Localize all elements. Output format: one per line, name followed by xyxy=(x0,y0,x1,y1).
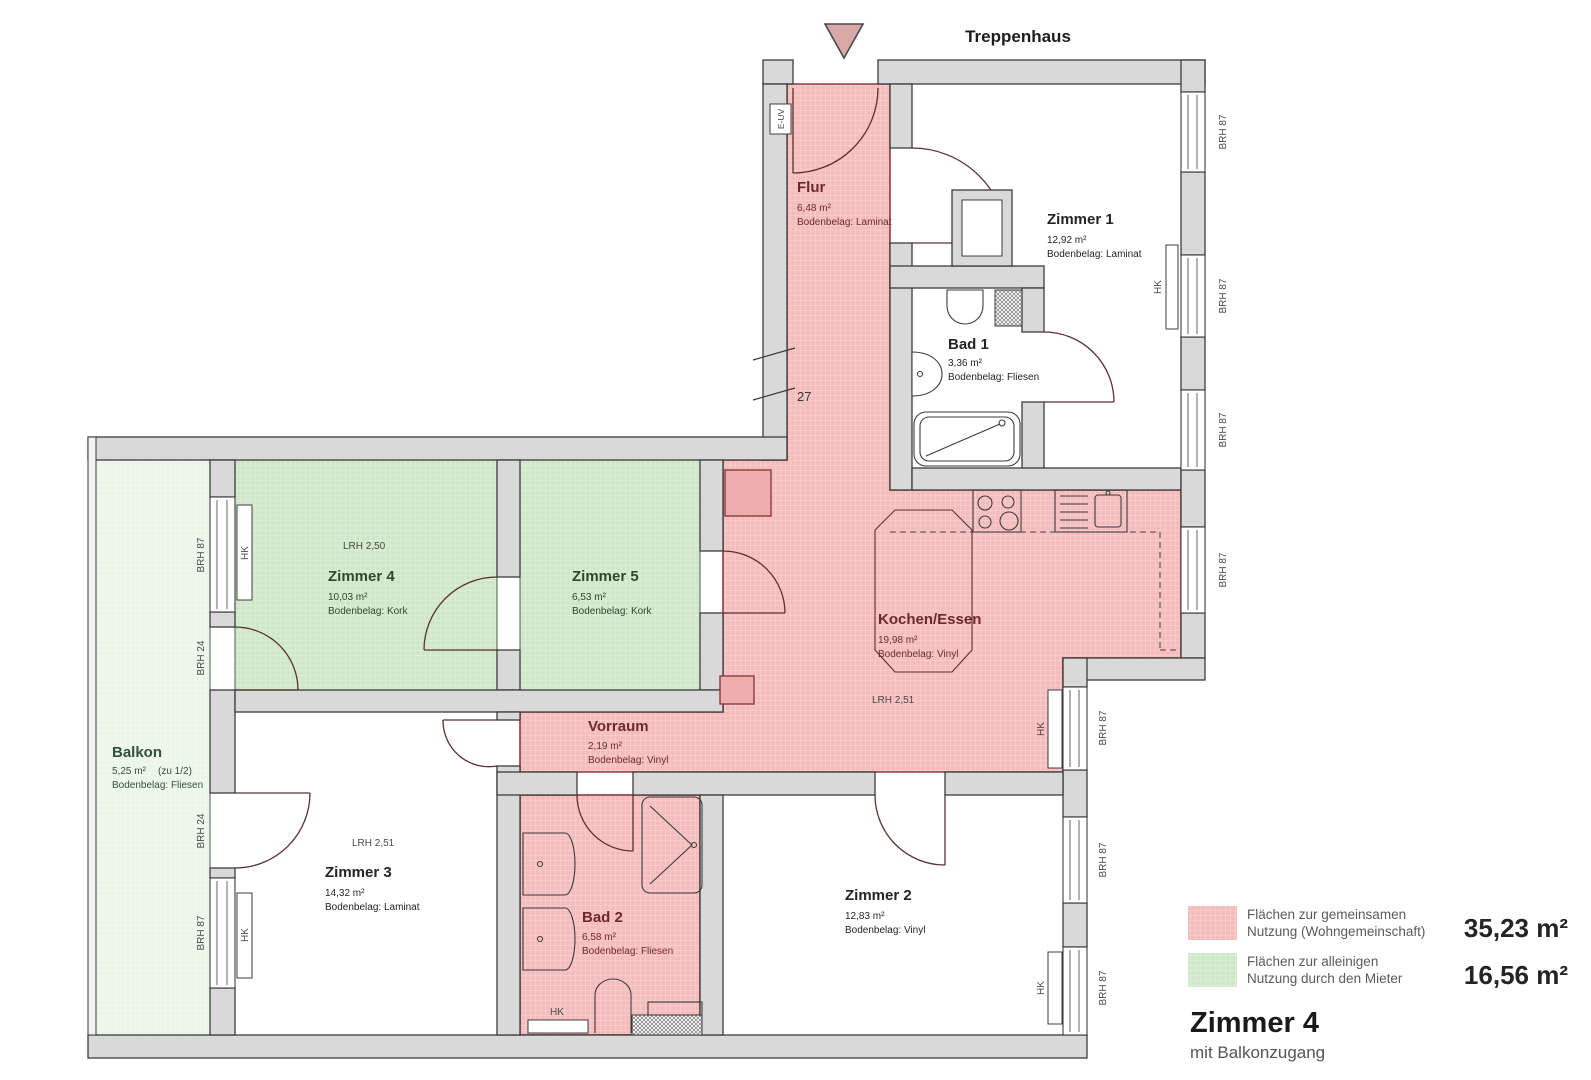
room-floor-zimmer1: Bodenbelag: Laminat xyxy=(1047,249,1142,260)
dimension-label: 27 xyxy=(797,389,811,404)
room-lrh-kochen: LRH 2,51 xyxy=(872,695,915,706)
room-floor-zimmer4: Bodenbelag: Kork xyxy=(328,606,409,617)
euv-label: E-UV xyxy=(776,109,786,130)
room-lrh-zimmer3: LRH 2,51 xyxy=(352,838,395,849)
room-floor-zimmer3: Bodenbelag: Laminat xyxy=(325,902,420,913)
bathtub-icon xyxy=(914,412,1020,466)
brh-label: BRH 87 xyxy=(1218,552,1229,587)
legend-common-line1: Flächen zur gemeinsamen xyxy=(1247,907,1406,922)
hk-label: HK xyxy=(240,928,251,942)
room-area-bad1: 3,36 m² xyxy=(948,358,983,369)
room-area-flur: 6,48 m² xyxy=(797,203,832,214)
hk-label: HK xyxy=(1036,722,1047,736)
room-label-vorraum: Vorraum xyxy=(588,718,649,735)
room-label-zimmer4: Zimmer 4 xyxy=(328,568,395,585)
room-area-zimmer1: 12,92 m² xyxy=(1047,235,1087,246)
room-label-flur: Flur xyxy=(797,179,825,196)
room-area-kochen: 19,98 m² xyxy=(878,635,918,646)
room-area-vorraum: 2,19 m² xyxy=(588,741,623,752)
shaft-hatch-icon xyxy=(632,1015,702,1035)
room-area-bad2: 6,58 m² xyxy=(582,932,617,943)
room-label-bad2: Bad 2 xyxy=(582,909,623,926)
shaft-hatch-icon xyxy=(995,290,1022,326)
brh-label: BRH 87 xyxy=(196,915,207,950)
sink-icon xyxy=(912,352,942,396)
brh-label: BRH 87 xyxy=(1218,412,1229,447)
radiator xyxy=(528,1020,588,1033)
floor-plan-page: E-UV 27 Treppenhaus Flur 6,48 m² Bodenbe… xyxy=(0,0,1591,1080)
shaft-vorraum xyxy=(720,676,754,704)
room-floor-zimmer2: Bodenbelag: Vinyl xyxy=(845,925,925,936)
legend-exclusive-line1: Flächen zur alleinigen xyxy=(1247,954,1378,969)
room-floor-vorraum: Bodenbelag: Vinyl xyxy=(588,755,668,766)
plan-subtitle: mit Balkonzugang xyxy=(1190,1043,1325,1062)
title-block: Zimmer 4 mit Balkonzugang xyxy=(1190,1007,1325,1062)
brh-label: BRH 24 xyxy=(196,640,207,675)
brh-label: BRH 87 xyxy=(1218,114,1229,149)
legend-common-line2: Nutzung (Wohngemeinschaft) xyxy=(1247,924,1425,939)
hk-label: HK xyxy=(550,1007,564,1018)
hk-label: HK xyxy=(1036,981,1047,995)
room-label-zimmer1: Zimmer 1 xyxy=(1047,211,1114,228)
plan-title: Zimmer 4 xyxy=(1190,1007,1319,1039)
hk-label: HK xyxy=(240,546,251,560)
room-label-balkon: Balkon xyxy=(112,744,162,761)
room-area-zimmer2: 12,83 m² xyxy=(845,911,885,922)
legend-exclusive-line2: Nutzung durch den Mieter xyxy=(1247,971,1403,986)
room-floor-bad2: Bodenbelag: Fliesen xyxy=(582,946,673,957)
entrance-arrow-icon xyxy=(825,24,863,58)
room-area-balkon: 5,25 m² xyxy=(112,766,147,777)
room-label-kochen: Kochen/Essen xyxy=(878,611,981,628)
room-area-zimmer4: 10,03 m² xyxy=(328,592,368,603)
room-floor-balkon: Bodenbelag: Fliesen xyxy=(112,780,203,791)
room-lrh-zimmer4: LRH 2,50 xyxy=(343,541,386,552)
room-label-bad1: Bad 1 xyxy=(948,336,989,353)
room-share-balkon: (zu 1/2) xyxy=(158,766,192,777)
brh-label: BRH 24 xyxy=(196,813,207,848)
brh-label: BRH 87 xyxy=(1098,842,1109,877)
legend-exclusive-value: 16,56 m² xyxy=(1464,960,1568,990)
brh-label: BRH 87 xyxy=(196,537,207,572)
room-floor-bad1: Bodenbelag: Fliesen xyxy=(948,372,1039,383)
balcony-railing xyxy=(88,437,96,1035)
room-area-zimmer3: 14,32 m² xyxy=(325,888,365,899)
room-floor-flur: Bodenbelag: Laminat xyxy=(797,217,892,228)
room-label-zimmer5: Zimmer 5 xyxy=(572,568,639,585)
room-area-zimmer5: 6,53 m² xyxy=(572,592,607,603)
room-floor-kochen: Bodenbelag: Vinyl xyxy=(878,649,958,660)
brh-label: BRH 87 xyxy=(1218,278,1229,313)
hk-label: HK xyxy=(1153,280,1164,294)
legend-swatch-exclusive xyxy=(1188,953,1237,987)
legend-swatch-common xyxy=(1188,906,1237,940)
legend-common-value: 35,23 m² xyxy=(1464,913,1568,943)
room-label-zimmer2: Zimmer 2 xyxy=(845,887,912,904)
toilet-icon xyxy=(947,290,983,324)
shaft-kitchen xyxy=(725,470,771,516)
floor-plan-svg: E-UV 27 Treppenhaus Flur 6,48 m² Bodenbe… xyxy=(0,0,1591,1080)
room-floor-zimmer5: Bodenbelag: Kork xyxy=(572,606,653,617)
legend: Flächen zur gemeinsamen Nutzung (Wohngem… xyxy=(1188,906,1568,990)
room-label-zimmer3: Zimmer 3 xyxy=(325,864,392,881)
staircase-label: Treppenhaus xyxy=(965,27,1071,46)
brh-label: BRH 87 xyxy=(1098,710,1109,745)
duct-shaft xyxy=(952,190,1012,266)
brh-label: BRH 87 xyxy=(1098,970,1109,1005)
